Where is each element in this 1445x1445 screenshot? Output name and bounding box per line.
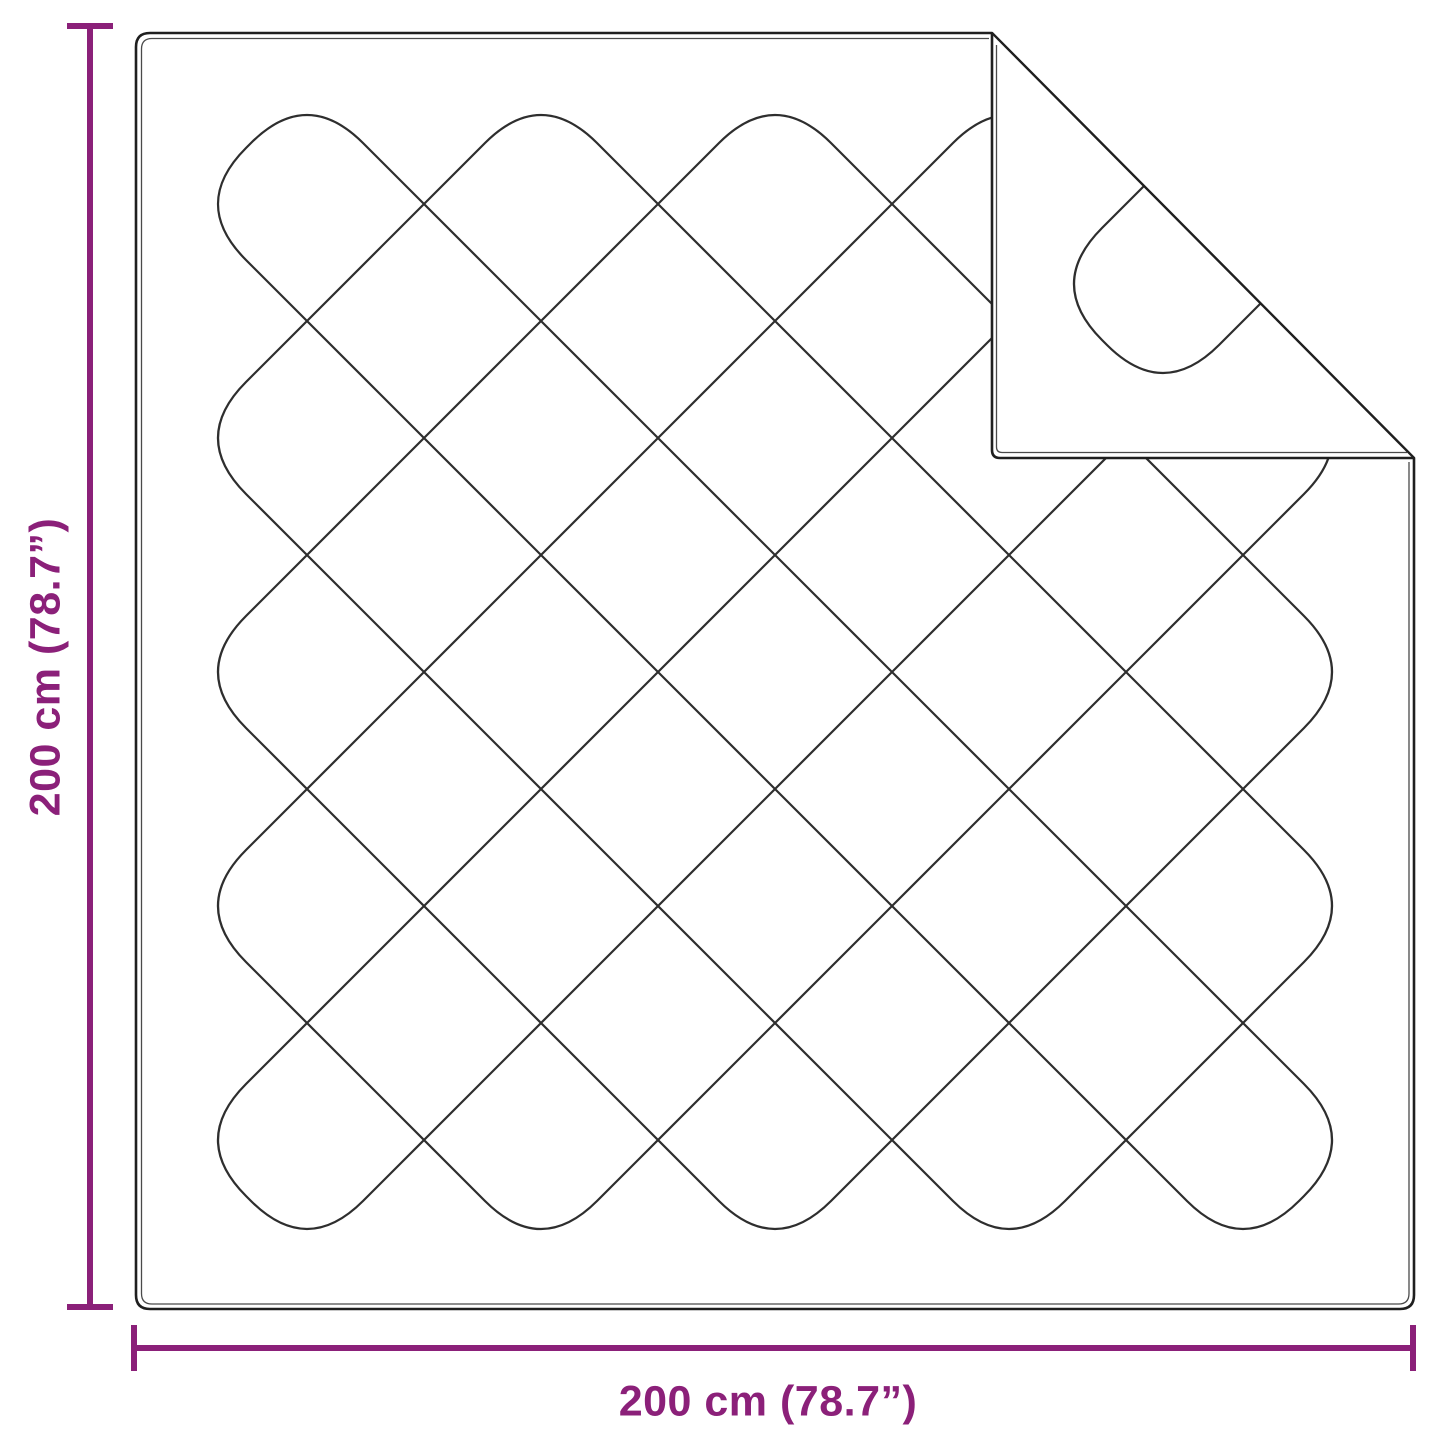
blanket-outline <box>136 33 1414 1309</box>
folded-corner <box>992 0 1445 458</box>
product-diagram: 200 cm (78.7”) 200 cm (78.7”) <box>0 0 1445 1445</box>
width-dimension-label: 200 cm (78.7”) <box>619 1378 918 1427</box>
blanket-line-art <box>0 0 1445 1445</box>
height-dimension-label: 200 cm (78.7”) <box>22 518 71 817</box>
